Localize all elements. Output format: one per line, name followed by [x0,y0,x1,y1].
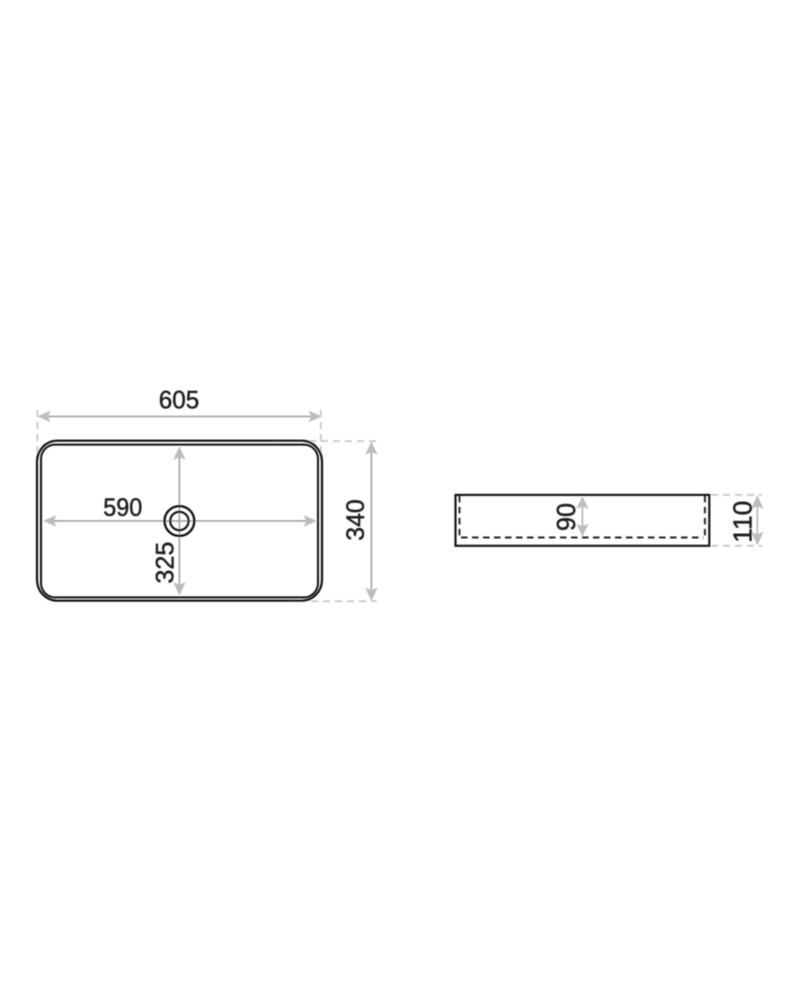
svg-text:340: 340 [342,499,370,541]
svg-text:90: 90 [553,503,581,531]
svg-text:590: 590 [103,494,142,522]
svg-text:605: 605 [159,387,200,415]
svg-text:110: 110 [729,501,757,543]
svg-text:325: 325 [152,542,180,584]
